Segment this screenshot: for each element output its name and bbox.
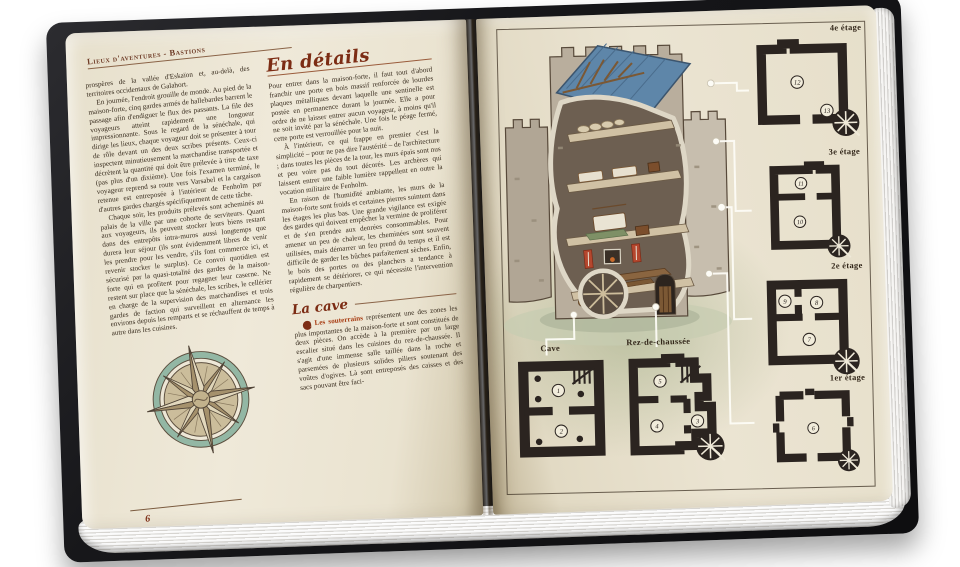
svg-text:10: 10: [796, 219, 803, 226]
entrance-door: [654, 274, 675, 314]
svg-text:3: 3: [694, 418, 699, 425]
room-number: 6: [807, 422, 818, 433]
room-number: 7: [803, 333, 816, 346]
right-page: Cave: [475, 5, 893, 515]
spiral-staircase-icon: [837, 449, 859, 471]
room-number: 3: [691, 415, 703, 427]
room-number: 4: [650, 420, 662, 432]
body-paragraph: En journée, l'endroit grouille de monde.…: [87, 82, 263, 214]
svg-text:7: 7: [807, 337, 811, 344]
floor-plan-e1: 6: [753, 383, 873, 474]
room-number: 8: [810, 296, 823, 309]
page-number-block: 6: [130, 498, 249, 526]
room-number: 13: [820, 104, 833, 117]
room-number: 2: [555, 425, 567, 437]
left-page: Lieux d'aventures - Bastions prospères d…: [65, 19, 483, 529]
book: Lieux d'aventures - Bastions prospères d…: [46, 0, 919, 563]
room-number: 10: [794, 216, 806, 228]
floor-plan-rdc: 5 4 3: [618, 347, 727, 465]
svg-text:2: 2: [559, 429, 563, 436]
page-spread: Lieux d'aventures - Bastions prospères d…: [65, 5, 893, 529]
left-column: prospères de la vallée d'Eskaïon et, au-…: [85, 65, 289, 466]
compass-rose-icon: [132, 330, 271, 469]
svg-text:9: 9: [783, 299, 787, 306]
room-number: 12: [790, 76, 803, 89]
body-paragraph: En raison de l'humidité ambiante, les mu…: [280, 180, 454, 295]
svg-text:6: 6: [811, 426, 814, 432]
right-column: En détails Pour entrer dans la maison-fo…: [266, 46, 470, 447]
svg-text:11: 11: [798, 181, 804, 188]
room-number: 9: [778, 295, 791, 308]
room-number: 1: [552, 384, 564, 396]
spiral-staircase: [579, 270, 626, 317]
spiral-staircase-icon: [832, 347, 859, 374]
floor-plan-e4: 12 13: [745, 33, 865, 144]
svg-text:5: 5: [658, 378, 662, 385]
svg-text:12: 12: [793, 80, 801, 87]
floor-plan-cave: 1 2: [512, 353, 610, 465]
open-book-photo: Lieux d'aventures - Bastions prospères d…: [0, 0, 960, 567]
room-number: 5: [653, 375, 665, 387]
floor-plan-e2: 9 8 7: [752, 271, 868, 376]
spiral-staircase-icon: [832, 109, 860, 137]
spiral-staircase-icon: [827, 234, 851, 258]
cave-paragraph: 1 Les souterrains représentent une des z…: [293, 304, 464, 393]
floor-plan-e3: 11 10: [752, 157, 862, 259]
body-paragraph: Chaque soir, les produits prélevés sont …: [99, 197, 276, 338]
svg-text:1: 1: [556, 388, 559, 395]
svg-text:8: 8: [814, 300, 818, 307]
tower-cutaway-illustration: [493, 23, 742, 354]
plan-label-cave: Cave: [540, 343, 560, 353]
room-number: 11: [795, 177, 807, 189]
plan-label-rdc: Rez-de-chaussée: [626, 336, 690, 347]
svg-text:4: 4: [655, 423, 659, 430]
svg-text:13: 13: [823, 108, 831, 115]
